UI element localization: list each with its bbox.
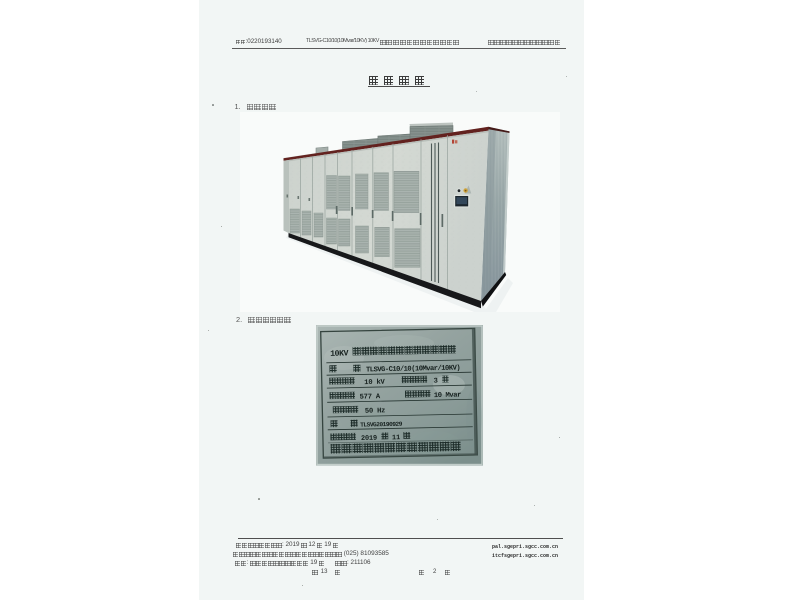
svg-text:10 kV: 10 kV [364,379,385,387]
svg-text:TLSVG20190929: TLSVG20190929 [360,421,403,429]
svg-text:10 Mvar: 10 Mvar [434,392,461,401]
svg-text:10KV: 10KV [330,349,349,358]
svg-text:50 Hz: 50 Hz [365,407,385,415]
svg-text:577 A: 577 A [360,393,381,401]
svg-text:2019: 2019 [361,435,377,443]
svg-text:11: 11 [392,434,401,442]
svg-text:3: 3 [433,378,437,386]
